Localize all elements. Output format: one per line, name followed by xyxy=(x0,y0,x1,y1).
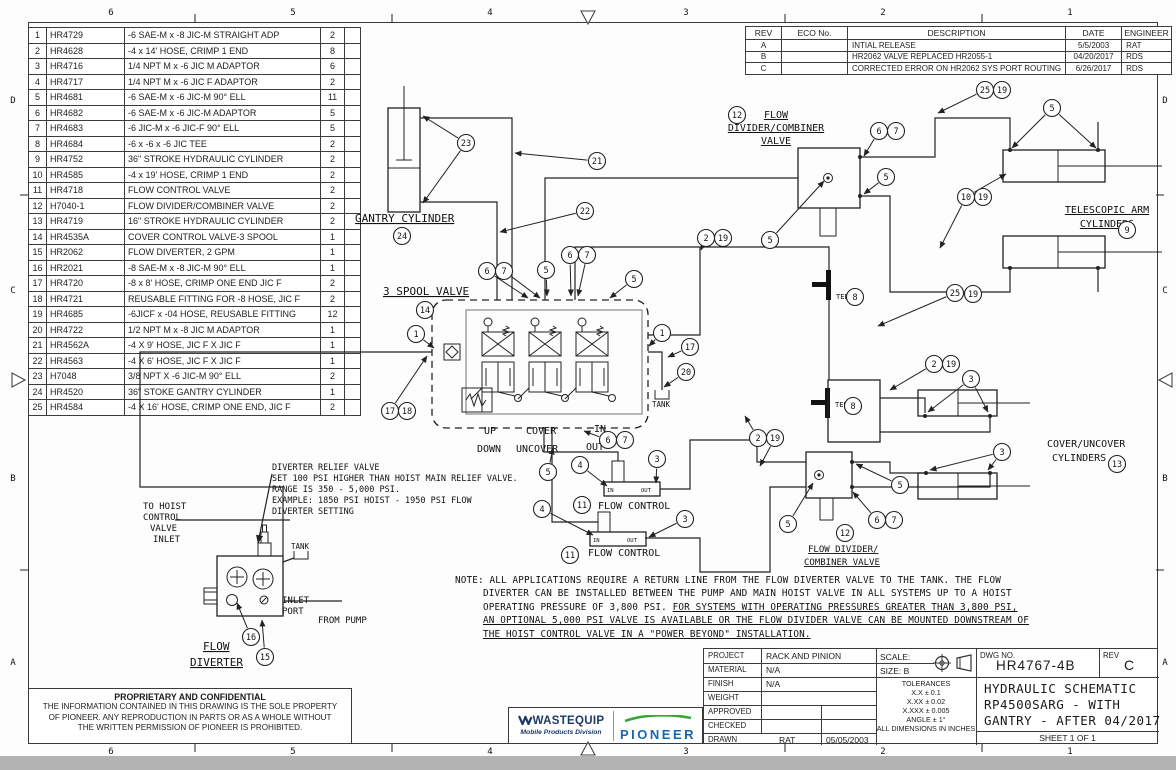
parts-row: 2HR4628-4 x 14' HOSE, CRIMP 1 END8 xyxy=(29,43,361,59)
description: -6 x -6 x -6 JIC TEE xyxy=(125,136,321,152)
pioneer-logo: PIONEER xyxy=(614,709,702,742)
note-line: OPERATING PRESSURE OF 3,800 PSI. FOR SYS… xyxy=(455,601,1161,614)
register-mark-right xyxy=(1159,373,1172,387)
parts-row: 20HR47221/2 NPT M x -8 JIC M ADAPTOR1 xyxy=(29,322,361,338)
item-no: 7 xyxy=(29,121,47,137)
parts-row: 7HR4683-6 JIC-M x -6 JIC-F 90° ELL5 xyxy=(29,121,361,137)
description: -8 SAE-M x -8 JIC-M 90° ELL xyxy=(125,260,321,276)
qty: 12 xyxy=(321,307,345,323)
part-no: HR4683 xyxy=(47,121,125,137)
spare xyxy=(345,59,361,75)
parts-row: 19HR4685-6JICF x -04 HOSE, REUSABLE FITT… xyxy=(29,307,361,323)
qty: 2 xyxy=(321,28,345,44)
parts-row: 23H70483/8 NPT X -6 JIC-M 90° ELL2 xyxy=(29,369,361,385)
item-no: 22 xyxy=(29,353,47,369)
item-no: 4 xyxy=(29,74,47,90)
parts-row: 4HR47171/4 NPT M x -6 JIC F ADAPTOR2 xyxy=(29,74,361,90)
part-no: HR4718 xyxy=(47,183,125,199)
qty: 1 xyxy=(321,353,345,369)
rev-header: DESCRIPTION xyxy=(848,27,1066,40)
qty: 5 xyxy=(321,105,345,121)
part-no: H7048 xyxy=(47,369,125,385)
description: -4 x 14' HOSE, CRIMP 1 END xyxy=(125,43,321,59)
qty: 2 xyxy=(321,74,345,90)
item-no: 20 xyxy=(29,322,47,338)
rev-value: C xyxy=(1124,657,1134,673)
description: -8 x 8' HOSE, CRIMP ONE END JIC F xyxy=(125,276,321,292)
item-no: 13 xyxy=(29,214,47,230)
spare xyxy=(345,400,361,416)
date: 6/26/2017 xyxy=(1066,63,1122,75)
parts-row: 1HR4729-6 SAE-M x -8 JIC-M STRAIGHT ADP2 xyxy=(29,28,361,44)
zone-letter-left: C xyxy=(10,286,15,296)
spare xyxy=(345,214,361,230)
tolerances: TOLERANCESX.X ± 0.1 X.XX ± 0.02X.XXX ± 0… xyxy=(876,679,976,733)
parts-list-table: 1HR4729-6 SAE-M x -8 JIC-M STRAIGHT ADP2… xyxy=(28,27,361,416)
spare xyxy=(345,183,361,199)
qty: 2 xyxy=(321,152,345,168)
parts-row: 24HR452036" STOKE GANTRY CYLINDER1 xyxy=(29,384,361,400)
item-no: 12 xyxy=(29,198,47,214)
zone-number-top: 2 xyxy=(880,8,885,18)
spare xyxy=(345,121,361,137)
zone-letter-right: A xyxy=(1162,658,1168,668)
qty: 1 xyxy=(321,260,345,276)
part-no: HR4717 xyxy=(47,74,125,90)
description: COVER CONTROL VALVE-3 SPOOL xyxy=(125,229,321,245)
item-no: 8 xyxy=(29,136,47,152)
note-text: NOTE: ALL APPLICATIONS REQUIRE A RETURN … xyxy=(455,574,1161,641)
rev: B xyxy=(746,51,782,63)
description: 1/2 NPT M x -8 JIC M ADAPTOR xyxy=(125,322,321,338)
description: -4 X 16' HOSE, CRIMP ONE END, JIC F xyxy=(125,400,321,416)
zone-letter-left: B xyxy=(10,474,15,484)
checked-label: CHECKED xyxy=(708,721,746,730)
part-no: HR4585 xyxy=(47,167,125,183)
qty: 2 xyxy=(321,291,345,307)
eco-no xyxy=(782,51,848,63)
description: 36" STROKE HYDRAULIC CYLINDER xyxy=(125,152,321,168)
parts-row: 14HR4535ACOVER CONTROL VALVE-3 SPOOL1 xyxy=(29,229,361,245)
part-no: H7040-1 xyxy=(47,198,125,214)
item-no: 11 xyxy=(29,183,47,199)
spare xyxy=(345,369,361,385)
spare xyxy=(345,74,361,90)
third-angle-projection-icon xyxy=(932,651,974,680)
spare xyxy=(345,90,361,106)
qty: 5 xyxy=(321,121,345,137)
qty: 1 xyxy=(321,322,345,338)
engineer: RAT xyxy=(1122,40,1172,52)
description: 1/4 NPT M x -6 JIC M ADAPTOR xyxy=(125,59,321,75)
description: -6 SAE-M x -6 JIC-M ADAPTOR xyxy=(125,105,321,121)
part-no: HR4719 xyxy=(47,214,125,230)
qty: 2 xyxy=(321,400,345,416)
part-no: HR4684 xyxy=(47,136,125,152)
finish-label: FINISH xyxy=(708,679,734,688)
rev-row: AINTIAL RELEASE5/5/2003RAT xyxy=(746,40,1172,52)
parts-row: 12H7040-1FLOW DIVIDER/COMBINER VALVE2 xyxy=(29,198,361,214)
part-no: HR4685 xyxy=(47,307,125,323)
spare xyxy=(345,291,361,307)
eco-no xyxy=(782,63,848,75)
description: 36" STOKE GANTRY CYLINDER xyxy=(125,384,321,400)
qty: 1 xyxy=(321,245,345,261)
parts-row: 16HR2021-8 SAE-M x -8 JIC-M 90° ELL1 xyxy=(29,260,361,276)
item-no: 21 xyxy=(29,338,47,354)
description: INTIAL RELEASE xyxy=(848,40,1066,52)
description: -4 x 19' HOSE, CRIMP 1 END xyxy=(125,167,321,183)
rev-header: ECO No. xyxy=(782,27,848,40)
date: 04/20/2017 xyxy=(1066,51,1122,63)
part-no: HR4520 xyxy=(47,384,125,400)
proprietary-box: PROPRIETARY AND CONFIDENTIAL THE INFORMA… xyxy=(28,688,352,744)
spare xyxy=(345,28,361,44)
item-no: 5 xyxy=(29,90,47,106)
description: -6 SAE-M x -8 JIC-M STRAIGHT ADP xyxy=(125,28,321,44)
weight-label: WEIGHT xyxy=(708,693,739,702)
parts-row: 17HR4720-8 x 8' HOSE, CRIMP ONE END JIC … xyxy=(29,276,361,292)
part-no: HR4681 xyxy=(47,90,125,106)
register-mark-left xyxy=(12,373,25,387)
part-no: HR2062 xyxy=(47,245,125,261)
parts-row: 15HR2062FLOW DIVERTER, 2 GPM1 xyxy=(29,245,361,261)
part-no: HR2021 xyxy=(47,260,125,276)
part-no: HR4722 xyxy=(47,322,125,338)
rev-header: REV xyxy=(746,27,782,40)
parts-row: 6HR4682-6 SAE-M x -6 JIC-M ADAPTOR5 xyxy=(29,105,361,121)
parts-row: 13HR471916" STROKE HYDRAULIC CYLINDER2 xyxy=(29,214,361,230)
engineer: RDS xyxy=(1122,63,1172,75)
qty: 6 xyxy=(321,59,345,75)
pioneer-swoosh-icon xyxy=(622,715,694,722)
zone-letter-right: D xyxy=(1162,96,1167,106)
drawing-sheet: 1HR4729-6 SAE-M x -8 JIC-M STRAIGHT ADP2… xyxy=(0,0,1176,770)
item-no: 6 xyxy=(29,105,47,121)
title-block: PROJECT MATERIAL FINISH WEIGHT APPROVED … xyxy=(703,648,1158,744)
rev-header: DATE xyxy=(1066,27,1122,40)
project-label: PROJECT xyxy=(708,651,744,660)
item-no: 9 xyxy=(29,152,47,168)
revision-table: REVECO No.DESCRIPTIONDATEENGINEER AINTIA… xyxy=(745,26,1172,75)
zone-number-top: 6 xyxy=(108,8,113,18)
zone-letter-left: D xyxy=(10,96,15,106)
qty: 2 xyxy=(321,369,345,385)
parts-row: 8HR4684-6 x -6 x -6 JIC TEE2 xyxy=(29,136,361,152)
description: -6JICF x -04 HOSE, REUSABLE FITTING xyxy=(125,307,321,323)
note-line: NOTE: ALL APPLICATIONS REQUIRE A RETURN … xyxy=(455,574,1161,587)
rev-header: ENGINEER xyxy=(1122,27,1172,40)
description: -6 JIC-M x -6 JIC-F 90° ELL xyxy=(125,121,321,137)
item-no: 23 xyxy=(29,369,47,385)
item-no: 16 xyxy=(29,260,47,276)
zone-number-top: 3 xyxy=(683,8,688,18)
qty: 1 xyxy=(321,229,345,245)
qty: 8 xyxy=(321,43,345,59)
finish-value: N/A xyxy=(766,679,780,689)
material-label: MATERIAL xyxy=(708,665,746,674)
spare xyxy=(345,307,361,323)
parts-row: 10HR4585-4 x 19' HOSE, CRIMP 1 END2 xyxy=(29,167,361,183)
description: 1/4 NPT M x -6 JIC F ADAPTOR xyxy=(125,74,321,90)
note-line: THE HOIST CONTROL VALVE IN A "POWER BEYO… xyxy=(455,628,1161,641)
spare xyxy=(345,322,361,338)
material-value: N/A xyxy=(766,665,780,675)
spare xyxy=(345,167,361,183)
dwg-no: HR4767-4B xyxy=(996,658,1076,673)
part-no: HR4729 xyxy=(47,28,125,44)
note-line: AN OPTIONAL 5,000 PSI VALVE IS AVAILABLE… xyxy=(455,614,1161,627)
qty: 2 xyxy=(321,214,345,230)
spare xyxy=(345,276,361,292)
qty: 2 xyxy=(321,136,345,152)
project-value: RACK AND PINION xyxy=(766,651,841,661)
item-no: 18 xyxy=(29,291,47,307)
part-no: HR4682 xyxy=(47,105,125,121)
qty: 2 xyxy=(321,183,345,199)
spare xyxy=(345,245,361,261)
spare xyxy=(345,198,361,214)
qty: 1 xyxy=(321,384,345,400)
spare xyxy=(345,384,361,400)
item-no: 2 xyxy=(29,43,47,59)
parts-row: 22HR4563-4 X 6' HOSE, JIC F X JIC F1 xyxy=(29,353,361,369)
description: CORRECTED ERROR ON HR2062 SYS PORT ROUTI… xyxy=(848,63,1066,75)
qty: 11 xyxy=(321,90,345,106)
description: -4 X 9' HOSE, JIC F X JIC F xyxy=(125,338,321,354)
approved-label: APPROVED xyxy=(708,707,751,716)
sheet-number: SHEET 1 OF 1 xyxy=(976,733,1159,743)
logo-box: WASTEQUIP Mobile Products Division PIONE… xyxy=(508,707,703,744)
rev-label: REV xyxy=(1103,651,1119,660)
part-no: HR4720 xyxy=(47,276,125,292)
description: FLOW DIVERTER, 2 GPM xyxy=(125,245,321,261)
proprietary-heading: PROPRIETARY AND CONFIDENTIAL xyxy=(29,692,351,702)
date: 5/5/2003 xyxy=(1066,40,1122,52)
description: REUSABLE FITTING FOR -8 HOSE, JIC F xyxy=(125,291,321,307)
parts-row: 21HR4562A-4 X 9' HOSE, JIC F X JIC F1 xyxy=(29,338,361,354)
spare xyxy=(345,136,361,152)
spare xyxy=(345,260,361,276)
rev: C xyxy=(746,63,782,75)
rev-row: CCORRECTED ERROR ON HR2062 SYS PORT ROUT… xyxy=(746,63,1172,75)
size-label: SIZE: B xyxy=(880,666,909,676)
item-no: 10 xyxy=(29,167,47,183)
item-no: 17 xyxy=(29,276,47,292)
item-no: 25 xyxy=(29,400,47,416)
description: 3/8 NPT X -6 JIC-M 90° ELL xyxy=(125,369,321,385)
description: FLOW CONTROL VALVE xyxy=(125,183,321,199)
qty: 2 xyxy=(321,276,345,292)
parts-row: 18HR4721REUSABLE FITTING FOR -8 HOSE, JI… xyxy=(29,291,361,307)
spare xyxy=(345,152,361,168)
parts-row: 3HR47161/4 NPT M x -6 JIC M ADAPTOR6 xyxy=(29,59,361,75)
parts-row: 9HR475236" STROKE HYDRAULIC CYLINDER2 xyxy=(29,152,361,168)
item-no: 1 xyxy=(29,28,47,44)
item-no: 19 xyxy=(29,307,47,323)
bottom-gray-strip xyxy=(0,756,1176,770)
zone-number-top: 1 xyxy=(1067,8,1072,18)
eco-no xyxy=(782,40,848,52)
drawn-label: DRAWN xyxy=(708,735,737,744)
drawn-date: 05/05/2003 xyxy=(826,735,869,745)
spare xyxy=(345,353,361,369)
drawing-title: HYDRAULIC SCHEMATIC RP4500SARG - WITH GA… xyxy=(984,681,1161,729)
description: -4 X 6' HOSE, JIC F X JIC F xyxy=(125,353,321,369)
parts-row: 11HR4718FLOW CONTROL VALVE2 xyxy=(29,183,361,199)
spare xyxy=(345,229,361,245)
spare xyxy=(345,105,361,121)
engineer: RDS xyxy=(1122,51,1172,63)
description: FLOW DIVIDER/COMBINER VALVE xyxy=(125,198,321,214)
parts-row: 5HR4681-6 SAE-M x -6 JIC-M 90° ELL11 xyxy=(29,90,361,106)
part-no: HR4535A xyxy=(47,229,125,245)
description: -6 SAE-M x -6 JIC-M 90° ELL xyxy=(125,90,321,106)
item-no: 15 xyxy=(29,245,47,261)
description: HR2062 VALVE REPLACED HR2055-1 xyxy=(848,51,1066,63)
part-no: HR4752 xyxy=(47,152,125,168)
parts-row: 25HR4584-4 X 16' HOSE, CRIMP ONE END, JI… xyxy=(29,400,361,416)
zone-letter-right: C xyxy=(1162,286,1167,296)
description: 16" STROKE HYDRAULIC CYLINDER xyxy=(125,214,321,230)
wastequip-logo: WASTEQUIP Mobile Products Division xyxy=(509,711,614,741)
rev: A xyxy=(746,40,782,52)
spare xyxy=(345,338,361,354)
zone-number-top: 5 xyxy=(290,8,295,18)
rev-row: BHR2062 VALVE REPLACED HR2055-104/20/201… xyxy=(746,51,1172,63)
item-no: 14 xyxy=(29,229,47,245)
part-no: HR4628 xyxy=(47,43,125,59)
note-line: DIVERTER CAN BE INSTALLED BETWEEN THE PU… xyxy=(455,587,1161,600)
part-no: HR4716 xyxy=(47,59,125,75)
item-no: 24 xyxy=(29,384,47,400)
wastequip-icon xyxy=(518,711,533,728)
spare xyxy=(345,43,361,59)
zone-letter-right: B xyxy=(1162,474,1167,484)
qty: 1 xyxy=(321,338,345,354)
part-no: HR4584 xyxy=(47,400,125,416)
zone-letter-left: A xyxy=(10,658,16,668)
part-no: HR4721 xyxy=(47,291,125,307)
drawn-value: RAT xyxy=(779,735,795,745)
scale-label: SCALE: xyxy=(880,652,910,662)
zone-number-top: 4 xyxy=(487,8,492,18)
part-no: HR4562A xyxy=(47,338,125,354)
qty: 2 xyxy=(321,198,345,214)
part-no: HR4563 xyxy=(47,353,125,369)
item-no: 3 xyxy=(29,59,47,75)
qty: 2 xyxy=(321,167,345,183)
